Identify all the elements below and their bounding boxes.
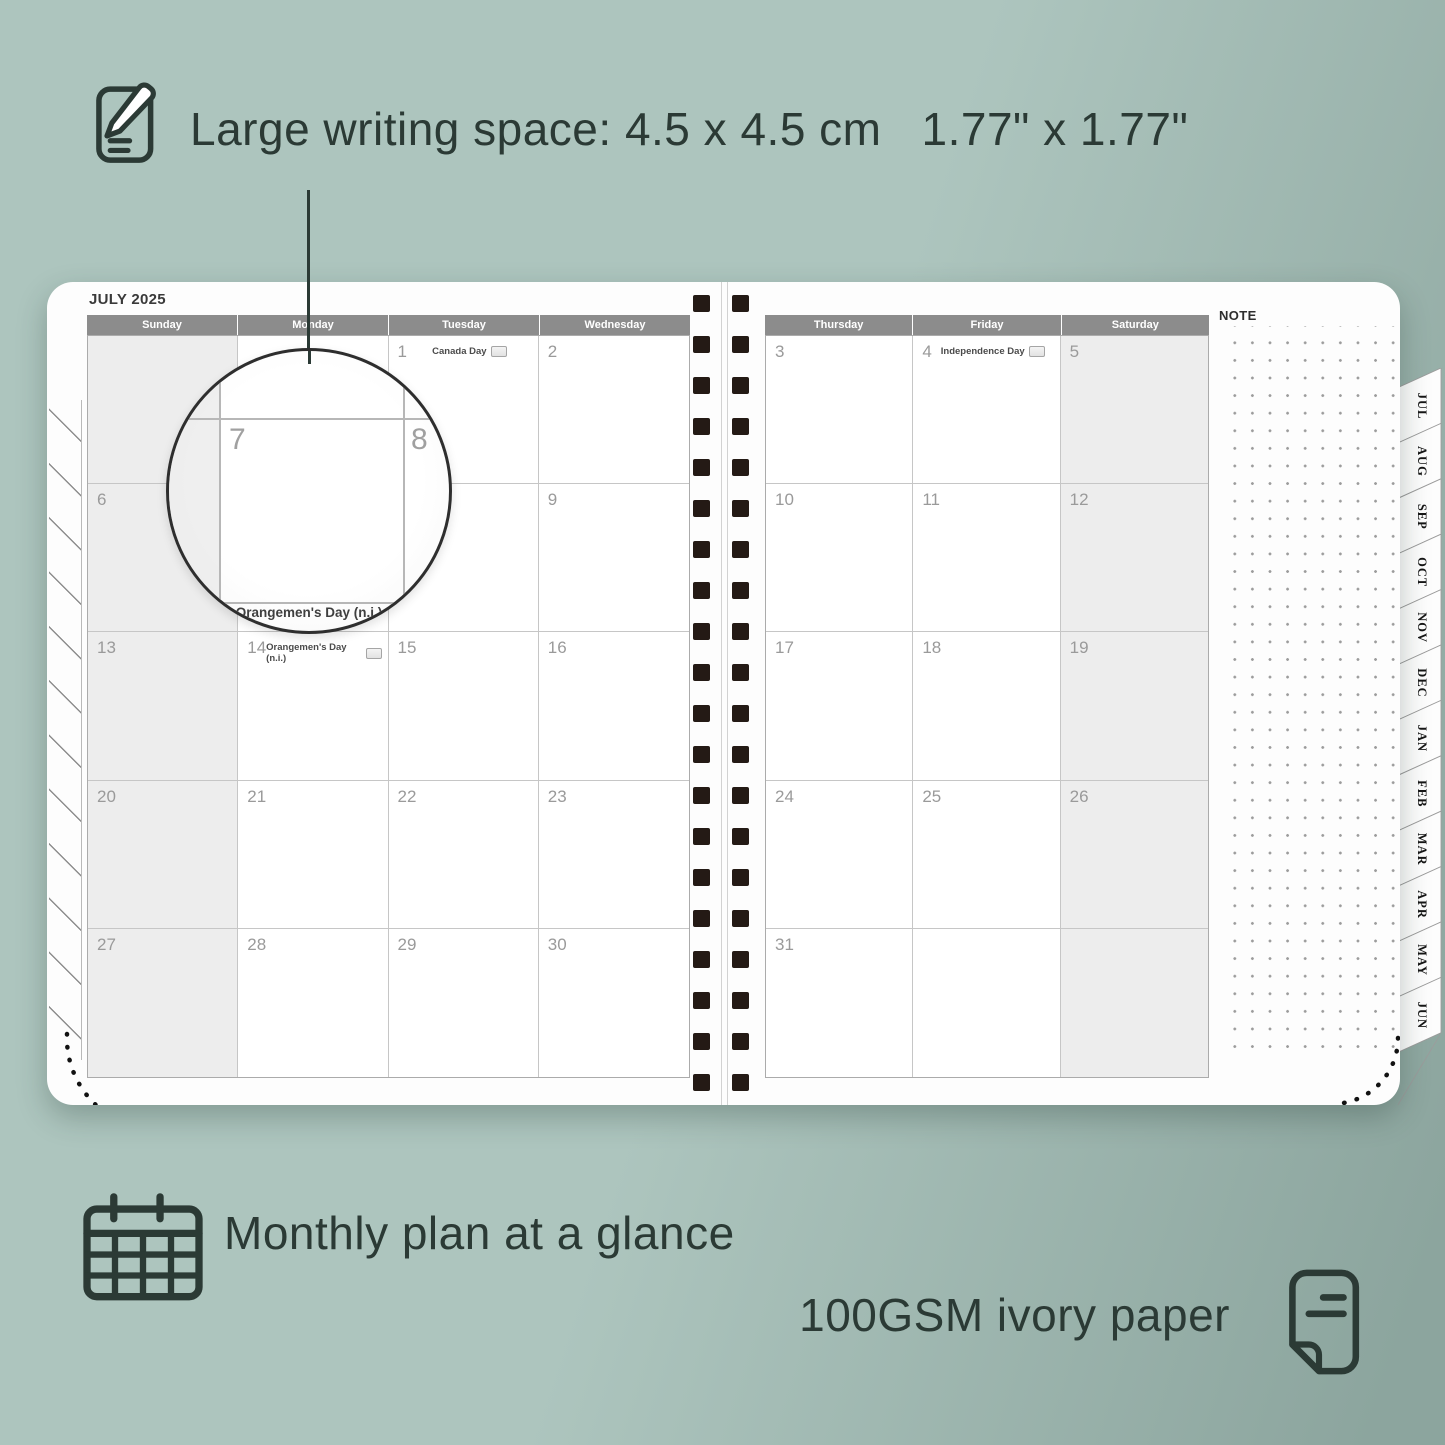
month-tab-label: SEP: [1415, 504, 1429, 530]
feature-writing-space: Large writing space: 4.5 x 4.5 cm1.77" x…: [190, 102, 1188, 156]
magnifier-gridline: [169, 602, 449, 604]
month-tab-label: AUG: [1415, 446, 1429, 477]
magnifier-gridline: [219, 351, 221, 631]
month-tab-label: NOV: [1415, 612, 1429, 643]
month-tab-label: APR: [1415, 890, 1429, 919]
month-tab-label: JUL: [1415, 393, 1429, 420]
magnifier-day-right: 8: [411, 423, 428, 457]
calendar-grid-icon: [78, 1192, 208, 1304]
magnifier-circle: 7 8 Orangemen's Day (n.i.): [166, 348, 452, 634]
month-tab-label: MAR: [1415, 833, 1429, 866]
month-tab-label: MAY: [1415, 944, 1429, 976]
feature-writing-space-inches: 1.77" x 1.77": [922, 103, 1189, 155]
month-tab-label: OCT: [1415, 557, 1429, 587]
feature-writing-space-metric: Large writing space: 4.5 x 4.5 cm: [190, 103, 882, 155]
pointer-line-tip: [308, 351, 311, 364]
feature-paper: 100GSM ivory paper: [799, 1288, 1230, 1342]
month-tab-label: DEC: [1415, 668, 1429, 697]
month-tabs: JULAUGSEPOCTNOVDECJANFEBMARAPRMAYJUN: [1396, 368, 1443, 1108]
magnifier-day-left: 7: [229, 423, 246, 457]
month-tab-label: FEB: [1415, 780, 1429, 807]
product-image: Large writing space: 4.5 x 4.5 cm1.77" x…: [0, 0, 1445, 1445]
magnifier-weekend-shade: [169, 351, 219, 631]
feature-monthly-plan: Monthly plan at a glance: [224, 1206, 735, 1260]
magnifier-gridline: [403, 351, 405, 631]
note-pencil-icon: [86, 76, 170, 170]
magnifier-gridline: [169, 418, 449, 420]
month-tab-label: JAN: [1415, 725, 1429, 752]
magnifier-caption: Orangemen's Day (n.i.): [169, 605, 449, 620]
page-fold-icon: [1274, 1266, 1364, 1378]
month-tab-label: JUN: [1415, 1002, 1429, 1029]
pointer-line: [307, 190, 310, 352]
